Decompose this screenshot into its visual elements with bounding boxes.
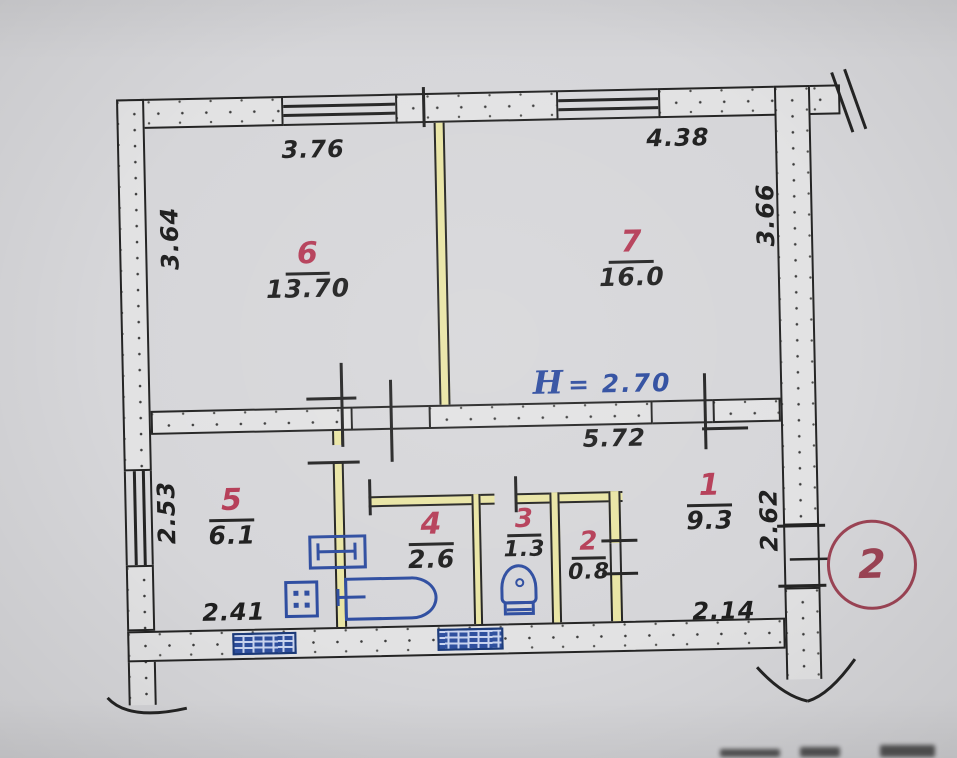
room-2-area: 0.8 bbox=[568, 559, 611, 585]
room-5-area: 6.1 bbox=[208, 521, 256, 551]
room-6-number: 6 bbox=[285, 239, 331, 276]
room-7-label: 7 16.0 bbox=[598, 227, 665, 293]
room-7-area: 16.0 bbox=[599, 263, 665, 293]
dim-bottom-right: 2.14 bbox=[692, 596, 756, 625]
room-1-label: 1 9.3 bbox=[685, 470, 734, 536]
room-7-number: 7 bbox=[608, 227, 654, 264]
height-symbol: H bbox=[532, 363, 563, 402]
room-3-label: 3 1.3 bbox=[503, 505, 546, 562]
room-5-number: 5 bbox=[209, 485, 255, 522]
room-3-area: 1.3 bbox=[503, 536, 546, 562]
room-4-label: 4 2.6 bbox=[407, 509, 456, 575]
room-1-number: 1 bbox=[687, 470, 733, 507]
dim-top-left: 3.76 bbox=[281, 135, 345, 164]
dim-top-right: 4.38 bbox=[646, 123, 710, 152]
wall-end-hook bbox=[757, 666, 808, 702]
room-5-label: 5 6.1 bbox=[208, 485, 257, 551]
dim-right-upper: 3.66 bbox=[751, 183, 780, 247]
apartment-floor-plan: 3.76 4.38 3.64 3.66 2.53 2.41 5.72 2.62 … bbox=[0, 0, 957, 758]
wall-end-hook bbox=[108, 696, 187, 714]
dim-left-lower: 2.53 bbox=[152, 481, 181, 545]
dim-left-upper: 3.64 bbox=[155, 207, 184, 271]
room-6-label: 6 13.70 bbox=[265, 238, 350, 304]
drawing-strokes bbox=[0, 0, 957, 758]
scan-artifact bbox=[800, 747, 840, 757]
height-value: = 2.70 bbox=[568, 368, 672, 399]
room-4-area: 2.6 bbox=[408, 545, 456, 575]
floor-plan-scan: 3.76 4.38 3.64 3.66 2.53 2.41 5.72 2.62 … bbox=[0, 0, 957, 758]
entrance-leader-line bbox=[790, 559, 828, 560]
scan-artifact bbox=[880, 745, 935, 757]
ceiling-height-note: H = 2.70 bbox=[532, 361, 671, 402]
room-1-area: 9.3 bbox=[686, 506, 734, 536]
room-6-area: 13.70 bbox=[266, 274, 351, 305]
room-2-number: 2 bbox=[571, 528, 606, 560]
room-3-number: 3 bbox=[507, 506, 542, 538]
wall-end-hook bbox=[807, 659, 856, 701]
dim-middle: 5.72 bbox=[582, 424, 646, 453]
room-2-label: 2 0.8 bbox=[567, 528, 610, 585]
room-4-number: 4 bbox=[408, 509, 454, 546]
scan-artifact bbox=[720, 749, 780, 757]
entrance-marker-number: 2 bbox=[858, 542, 887, 589]
dim-right-lower: 2.62 bbox=[754, 488, 783, 552]
dim-bottom-left: 2.41 bbox=[202, 598, 266, 627]
